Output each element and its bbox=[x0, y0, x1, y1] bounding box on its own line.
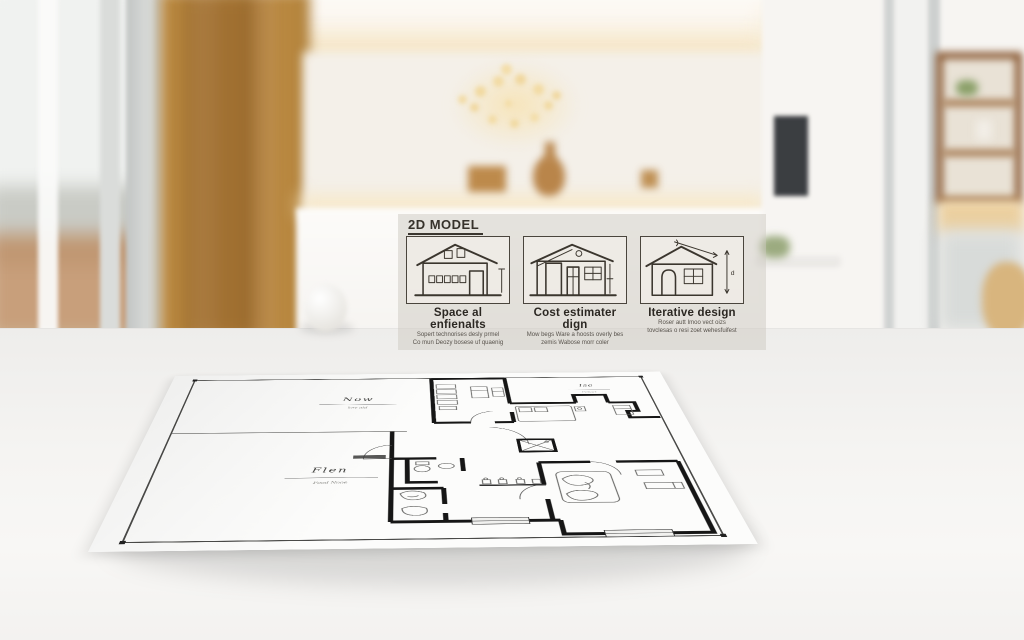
chandelier-lights bbox=[505, 100, 512, 107]
card-subtext: tovclesas o resi zoet wehesfuifest bbox=[640, 328, 744, 335]
card-subtext: Mow begs Ware a hoosts overly bes bbox=[523, 332, 627, 339]
interior-scene: Now kev aid Flen Food Nooe Ise Ismarl 2D… bbox=[0, 0, 1024, 640]
card-caption: Space al enfienalts bbox=[406, 307, 510, 331]
card-subtext: Co mun Deozy bosese uf quaenig bbox=[406, 340, 510, 347]
wooden-vase bbox=[533, 156, 565, 196]
two-story-house-sketch-icon bbox=[406, 236, 510, 304]
wooden-box bbox=[468, 166, 506, 192]
dimensioned-house-sketch-icon: d bbox=[640, 236, 744, 304]
right-counter bbox=[938, 200, 1024, 234]
shelf-board bbox=[943, 100, 1015, 106]
tv-screen bbox=[774, 116, 808, 196]
card-caption: Iterative design bbox=[640, 307, 744, 319]
paper-shadow bbox=[110, 505, 750, 585]
2d-model-overlay-panel: 2D MODEL bbox=[398, 214, 766, 350]
single-story-house-sketch-icon bbox=[523, 236, 627, 304]
card-subtext: Roser autt Imoo vect oizs bbox=[640, 320, 744, 327]
shelf-plant bbox=[956, 80, 978, 96]
decor-sphere bbox=[305, 284, 347, 332]
overlay-cards: Space al enfienalts Sopert technorises d… bbox=[406, 236, 744, 347]
dimension-label: d bbox=[731, 270, 735, 277]
counter-object bbox=[641, 170, 658, 188]
shelf-board bbox=[943, 150, 1015, 156]
card-subtext: zemis Wabose morr coler bbox=[523, 340, 627, 347]
table-surface bbox=[0, 328, 1024, 640]
chandelier-glow bbox=[450, 60, 580, 150]
overlay-card-spatial: Space al enfienalts Sopert technorises d… bbox=[406, 236, 510, 347]
overlay-card-iterative: d Iterative design Roser autt Imoo vect … bbox=[640, 236, 744, 347]
overlay-title: 2D MODEL bbox=[408, 217, 483, 235]
wooden-stool bbox=[982, 262, 1024, 338]
wood-panel-shade bbox=[188, 0, 262, 340]
card-caption: Cost estimater dign bbox=[523, 307, 627, 331]
overlay-card-cost: Cost estimater dign Mow begs Ware a hoos… bbox=[523, 236, 627, 347]
shelf-pot bbox=[976, 120, 992, 140]
card-subtext: Sopert technorises desly prmel bbox=[406, 332, 510, 339]
